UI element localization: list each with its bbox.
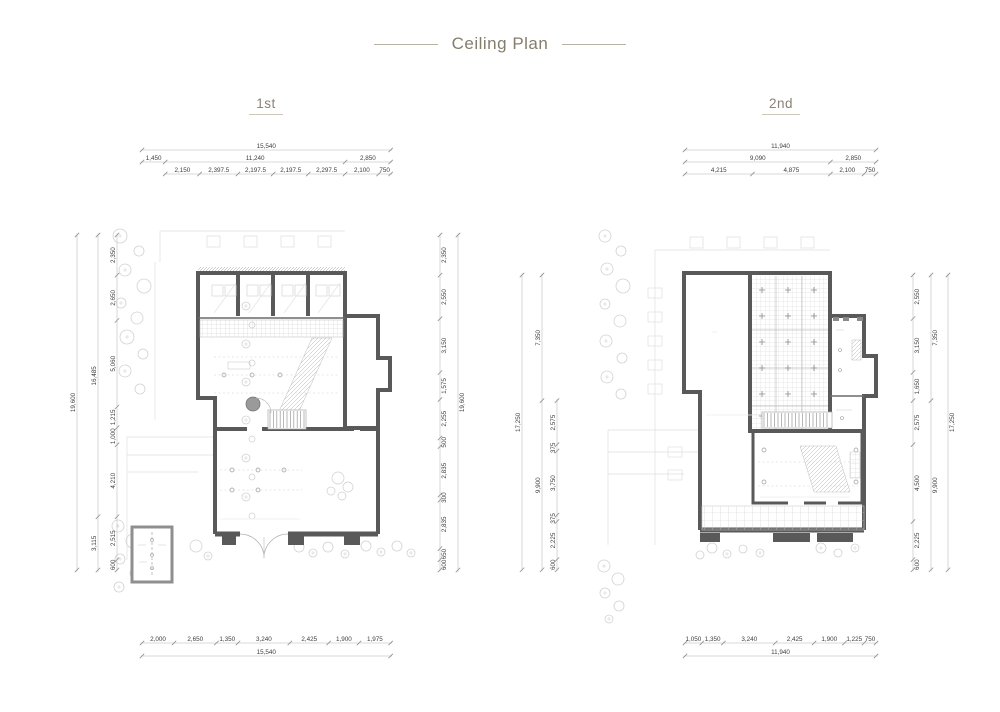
stairs-2nd xyxy=(762,412,832,428)
svg-text:2,650: 2,650 xyxy=(110,289,117,305)
svg-text:3,150: 3,150 xyxy=(914,337,921,353)
svg-text:2,575: 2,575 xyxy=(914,414,921,430)
svg-text:2,297.5: 2,297.5 xyxy=(316,167,338,174)
svg-text:3,240: 3,240 xyxy=(256,636,272,643)
svg-text:4,875: 4,875 xyxy=(784,167,800,174)
svg-text:19,600: 19,600 xyxy=(70,392,77,412)
round-fixture xyxy=(246,397,260,411)
floor-label-2nd: 2nd xyxy=(741,95,821,115)
entrance-doors-1st xyxy=(240,534,288,558)
dimensions-1st: 15,5401,45011,2402,8502,1502,397.52,197.… xyxy=(70,143,466,658)
svg-text:15,540: 15,540 xyxy=(257,143,277,150)
svg-text:2,255: 2,255 xyxy=(441,410,448,426)
svg-text:600: 600 xyxy=(110,559,117,570)
ceiling-grid-room-2nd xyxy=(752,276,828,429)
svg-text:1,900: 1,900 xyxy=(821,636,837,643)
indoor-planting xyxy=(327,472,353,500)
svg-text:600: 600 xyxy=(550,559,557,570)
svg-text:3,750: 3,750 xyxy=(550,475,557,491)
svg-text:17,250: 17,250 xyxy=(949,412,956,432)
title-rule-left xyxy=(374,44,438,45)
svg-text:2,150: 2,150 xyxy=(175,167,191,174)
svg-text:2,397.5: 2,397.5 xyxy=(208,167,230,174)
svg-text:9,090: 9,090 xyxy=(750,155,766,162)
svg-text:1,650: 1,650 xyxy=(914,378,921,394)
terrace-grid-2nd xyxy=(702,506,864,530)
floor-label-1st: 1st xyxy=(226,95,306,115)
svg-text:16,485: 16,485 xyxy=(91,366,98,386)
svg-text:2,550: 2,550 xyxy=(441,289,448,305)
title-rule-right xyxy=(562,44,626,45)
ceiling-plan-sheet: Ceiling Plan 1st 2nd xyxy=(0,0,1000,707)
svg-text:2,000: 2,000 xyxy=(150,636,166,643)
svg-text:1,215: 1,215 xyxy=(110,409,117,425)
svg-text:500: 500 xyxy=(441,437,448,448)
svg-text:1,050: 1,050 xyxy=(686,636,702,643)
svg-text:3,240: 3,240 xyxy=(741,636,757,643)
annex-room-2nd xyxy=(833,317,863,420)
svg-text:9,900: 9,900 xyxy=(932,477,939,493)
svg-text:2,515: 2,515 xyxy=(110,530,117,546)
svg-text:11,240: 11,240 xyxy=(246,155,265,162)
svg-text:4,210: 4,210 xyxy=(110,472,117,488)
svg-text:600: 600 xyxy=(914,559,921,570)
svg-text:11,940: 11,940 xyxy=(771,649,790,656)
svg-text:1,000: 1,000 xyxy=(110,428,117,444)
svg-text:1,350: 1,350 xyxy=(705,636,721,643)
stairs-1st xyxy=(268,410,306,429)
svg-text:1,350: 1,350 xyxy=(219,636,235,643)
dimensions-2nd: 11,9409,0902,8504,2154,8752,1007501,0501… xyxy=(515,143,956,658)
sheet-header: Ceiling Plan xyxy=(0,34,1000,54)
svg-text:2,350: 2,350 xyxy=(441,247,448,263)
svg-text:2,550: 2,550 xyxy=(914,288,921,304)
svg-text:1,975: 1,975 xyxy=(367,636,383,643)
svg-text:2,425: 2,425 xyxy=(787,636,803,643)
svg-text:1,900: 1,900 xyxy=(336,636,352,643)
svg-text:2,850: 2,850 xyxy=(845,155,861,162)
svg-text:750: 750 xyxy=(865,167,876,174)
svg-text:2,225: 2,225 xyxy=(914,532,921,548)
svg-text:1,575: 1,575 xyxy=(441,378,448,394)
svg-text:300: 300 xyxy=(441,492,448,503)
svg-text:3,115: 3,115 xyxy=(91,535,98,551)
svg-text:2,197.5: 2,197.5 xyxy=(245,167,267,174)
svg-text:7,350: 7,350 xyxy=(932,329,939,345)
svg-text:2,575: 2,575 xyxy=(550,414,557,430)
svg-text:2,350: 2,350 xyxy=(110,247,117,263)
svg-text:750: 750 xyxy=(865,636,876,643)
plans-canvas: 15,5401,45011,2402,8502,1502,397.52,197.… xyxy=(0,0,1000,707)
svg-text:17,250: 17,250 xyxy=(515,412,522,432)
svg-text:2,225: 2,225 xyxy=(550,532,557,548)
svg-text:2,100: 2,100 xyxy=(839,167,855,174)
svg-text:1,450: 1,450 xyxy=(146,155,162,162)
svg-text:375: 375 xyxy=(550,513,557,524)
detached-structure-1st xyxy=(132,527,172,582)
svg-text:5,060: 5,060 xyxy=(110,355,117,371)
svg-text:750: 750 xyxy=(379,167,390,174)
svg-text:19,600: 19,600 xyxy=(459,392,466,412)
svg-text:9,900: 9,900 xyxy=(535,477,542,493)
upper-rooms-fixtures-1st xyxy=(212,283,340,313)
svg-text:2,850: 2,850 xyxy=(360,155,376,162)
svg-text:3,150: 3,150 xyxy=(441,337,448,353)
svg-text:15,540: 15,540 xyxy=(257,649,277,656)
svg-text:2,835: 2,835 xyxy=(441,516,448,532)
svg-text:2,100: 2,100 xyxy=(354,167,370,174)
svg-text:375: 375 xyxy=(550,442,557,453)
svg-text:2,425: 2,425 xyxy=(301,636,317,643)
svg-text:2,650: 2,650 xyxy=(187,636,203,643)
svg-text:11,940: 11,940 xyxy=(771,143,790,150)
svg-text:2,835: 2,835 xyxy=(441,462,448,478)
svg-text:1,225: 1,225 xyxy=(846,636,862,643)
svg-text:600: 600 xyxy=(441,559,448,570)
page-title: Ceiling Plan xyxy=(452,34,549,54)
ceiling-grid-strip-1st xyxy=(200,320,343,337)
svg-text:4,215: 4,215 xyxy=(711,167,727,174)
svg-text:2,197.5: 2,197.5 xyxy=(280,167,302,174)
svg-text:7,350: 7,350 xyxy=(535,329,542,345)
svg-text:4,500: 4,500 xyxy=(914,475,921,491)
